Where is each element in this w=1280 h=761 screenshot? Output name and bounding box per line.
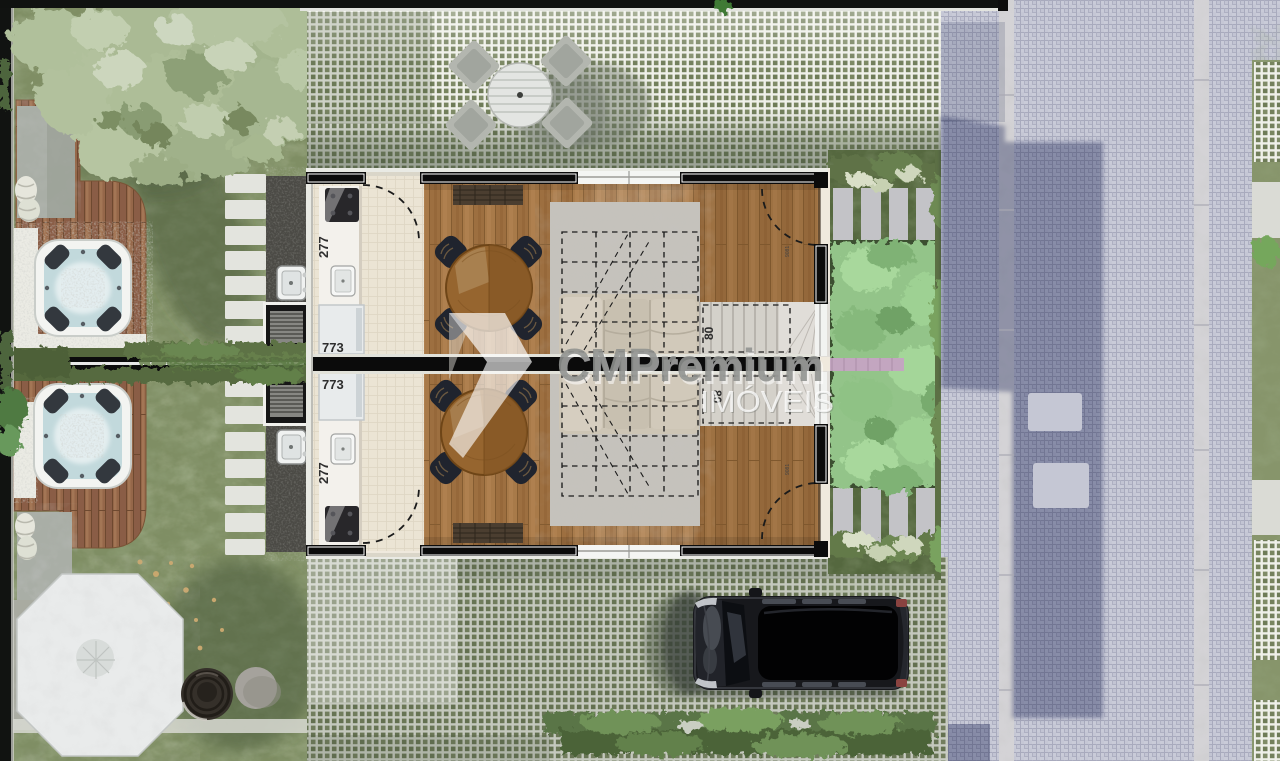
svg-text:277: 277 bbox=[316, 462, 331, 484]
svg-text:9081: 9081 bbox=[785, 464, 791, 475]
svg-text:773: 773 bbox=[322, 340, 344, 355]
svg-text:IMÓVEIS: IMÓVEIS bbox=[700, 384, 834, 419]
svg-text:773: 773 bbox=[322, 377, 344, 392]
svg-text:9081: 9081 bbox=[785, 246, 791, 257]
svg-text:277: 277 bbox=[316, 236, 331, 258]
svg-text:80: 80 bbox=[702, 326, 716, 340]
